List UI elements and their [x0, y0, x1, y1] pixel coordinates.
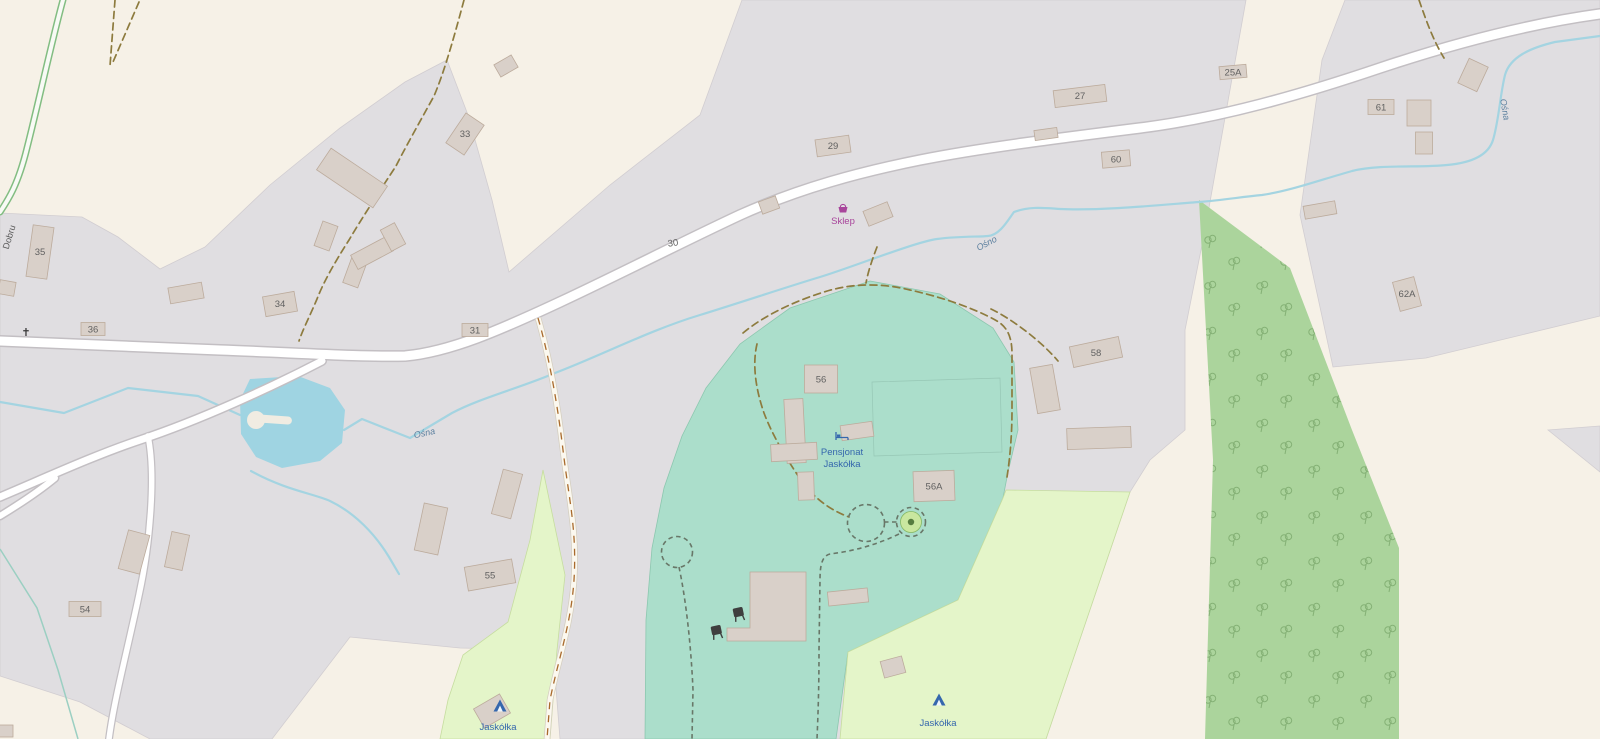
- house-number-55: 55: [485, 571, 496, 582]
- wayside-cross-icon: ✝: [21, 327, 30, 339]
- shop-label: Sklep: [831, 216, 855, 227]
- map-svg: 35 34 36 33 31 30 29 27 25A 60 61 62A 58…: [0, 0, 1600, 739]
- building: [1067, 426, 1132, 449]
- house-number-58: 58: [1091, 348, 1102, 359]
- house-number-25A: 25A: [1225, 68, 1243, 79]
- house-number-36: 36: [88, 325, 99, 336]
- map-canvas[interactable]: 35 34 36 33 31 30 29 27 25A 60 61 62A 58…: [0, 0, 1600, 739]
- building: [0, 725, 13, 737]
- house-number-30: 30: [667, 237, 679, 249]
- house-number-29: 29: [828, 141, 839, 152]
- house-number-33: 33: [460, 129, 471, 140]
- pension-label-line2: Jaskółka: [824, 459, 862, 470]
- building: [0, 280, 16, 297]
- house-number-62A: 62A: [1399, 289, 1417, 300]
- house-number-31: 31: [470, 326, 481, 337]
- circle-tree-dot: [908, 519, 914, 525]
- campsite-label-east: Jaskółka: [920, 718, 958, 729]
- house-number-54: 54: [80, 605, 91, 616]
- building: [1416, 132, 1433, 154]
- residential-area-east: [1300, 0, 1600, 367]
- campsite-label-west: Jaskółka: [480, 722, 518, 733]
- building: [771, 442, 818, 461]
- building: [1407, 100, 1431, 126]
- house-number-27: 27: [1075, 91, 1086, 102]
- pension-label-line1: Pensjonat: [821, 447, 864, 458]
- house-number-61: 61: [1376, 103, 1387, 114]
- house-number-56A: 56A: [926, 482, 944, 493]
- house-number-56: 56: [816, 375, 827, 386]
- house-number-35: 35: [35, 247, 46, 258]
- building: [798, 472, 815, 501]
- house-number-60: 60: [1111, 155, 1122, 166]
- house-number-34: 34: [275, 299, 286, 310]
